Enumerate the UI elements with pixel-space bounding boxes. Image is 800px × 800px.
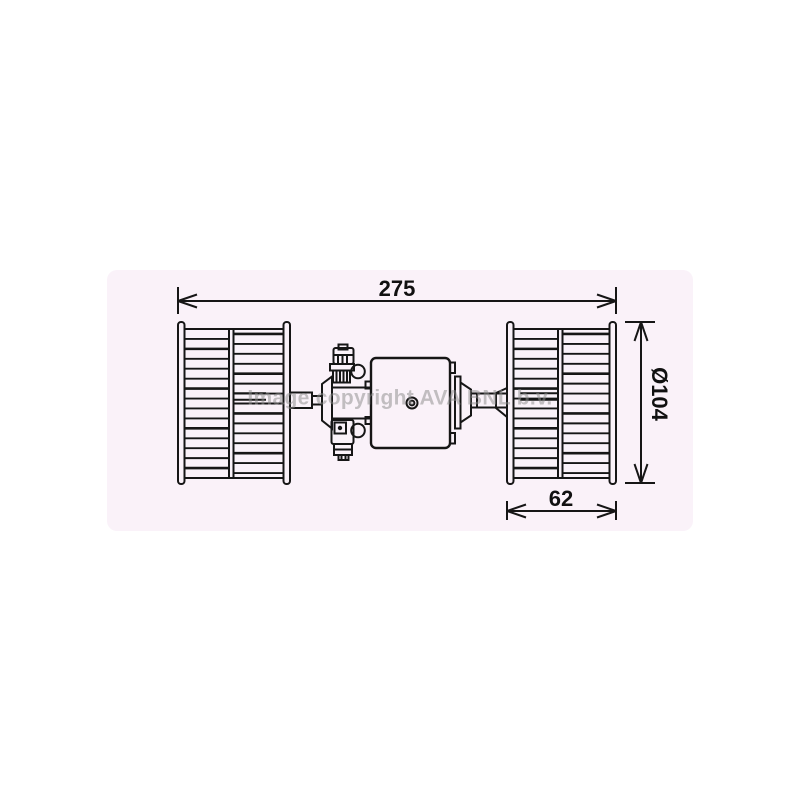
bottom-connector-pin-icon (338, 426, 342, 430)
blower-motor-technical-drawing: 275 Ø104 62 Image copyright AVA BNL b.v. (0, 0, 800, 800)
watermark-text: Image copyright AVA BNL b.v. (247, 387, 552, 410)
dimension-fan-width-label: 62 (549, 486, 573, 511)
product-image-canvas: 275 Ø104 62 Image copyright AVA BNL b.v. (0, 0, 800, 800)
dimension-diameter-label: Ø104 (647, 367, 672, 422)
dimension-total-width-label: 275 (379, 276, 416, 301)
